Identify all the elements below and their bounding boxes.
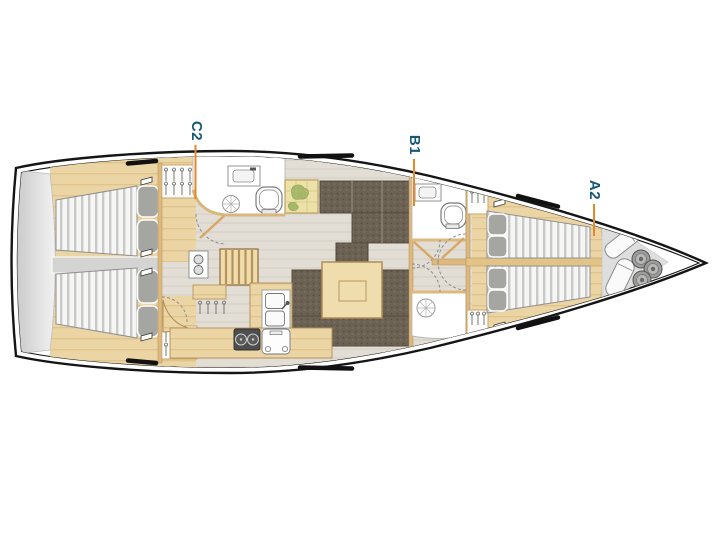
zone-label-b1: B1 (405, 128, 423, 162)
berth-divider (466, 258, 606, 266)
settee-left-arm (292, 270, 323, 318)
locker-shelf (193, 285, 226, 299)
pillow-icon (488, 214, 507, 235)
forepeak-locker (602, 219, 668, 306)
zone-label-c2: C2 (187, 114, 205, 148)
interior (12, 150, 668, 394)
aft-bulkhead (158, 163, 162, 363)
window-dash (128, 161, 156, 164)
sink-basin-icon (233, 170, 254, 182)
toilet-bowl-icon (445, 206, 463, 224)
door-wall-stub (432, 259, 468, 265)
sink-basin-icon (266, 294, 285, 309)
zone-label-a2: A2 (585, 173, 603, 207)
pillow-icon (488, 236, 507, 257)
salon-table-icon (322, 262, 382, 318)
floorplan-svg (0, 0, 720, 540)
toilet-tank-icon (446, 224, 459, 229)
shower-drain-spokes (223, 196, 240, 213)
pillow-icon (138, 306, 159, 337)
pillow-icon (488, 290, 507, 311)
nav-chart-table (285, 180, 318, 213)
window-dash (300, 368, 352, 369)
stool-icon (336, 243, 368, 263)
sink-basin-icon (419, 187, 436, 198)
window-dash (300, 156, 352, 157)
toilet-bowl-icon (260, 190, 279, 209)
pillow-icon (138, 186, 159, 217)
yacht-floorplan: C2 B1 A2 (0, 0, 720, 540)
pillow-icon (488, 268, 507, 289)
cabinet-block (320, 181, 412, 213)
faucet-icon (250, 168, 256, 171)
sink-basin-icon (266, 311, 285, 326)
pillow-icon (138, 220, 159, 253)
settee-right-arm (382, 270, 412, 318)
window-dash (128, 361, 156, 364)
oven-handle (270, 331, 282, 335)
dial-icon (194, 255, 203, 264)
dial-icon (194, 266, 203, 275)
